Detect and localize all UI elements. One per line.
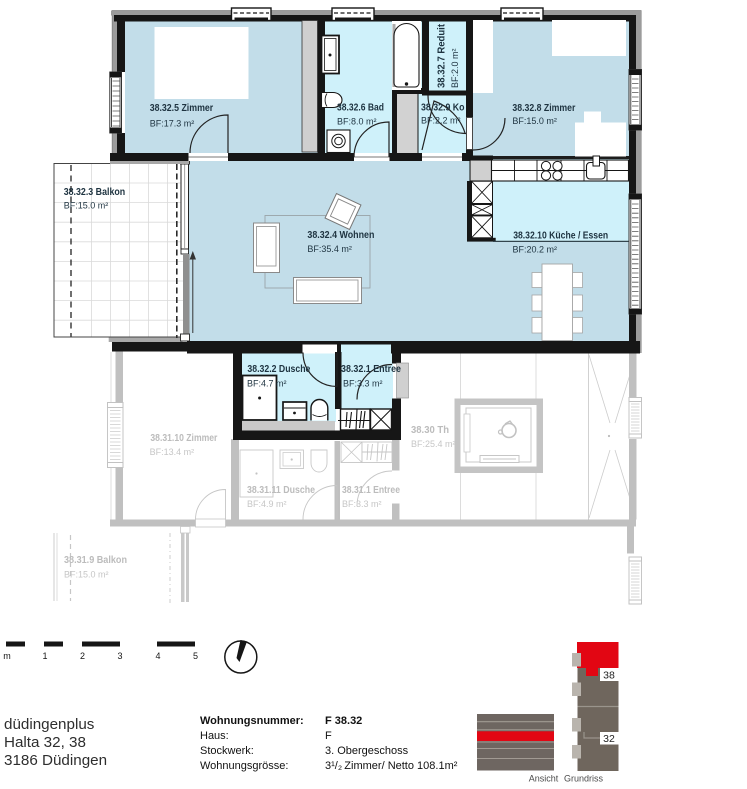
svg-text:38.32.10 Küche / Essen: 38.32.10 Küche / Essen	[513, 230, 608, 242]
svg-text:Ansicht: Ansicht	[529, 774, 559, 784]
svg-text:32: 32	[603, 733, 615, 745]
svg-text:Grundriss: Grundriss	[564, 774, 604, 784]
svg-text:3: 3	[117, 651, 122, 661]
svg-text:3. Obergeschoss: 3. Obergeschoss	[325, 745, 409, 757]
svg-text:38.31.11 Dusche: 38.31.11 Dusche	[247, 484, 315, 496]
svg-text:BF:15.0 m²: BF:15.0 m²	[64, 201, 109, 211]
svg-text:düdingenplus: düdingenplus	[4, 716, 95, 733]
svg-text:Halta 32, 38: Halta 32, 38	[4, 734, 86, 751]
svg-text:3186 Düdingen: 3186 Düdingen	[4, 752, 107, 769]
svg-text:38.32.5 Zimmer: 38.32.5 Zimmer	[150, 102, 214, 114]
svg-text:5: 5	[193, 651, 198, 661]
svg-text:BF:13.4 m²: BF:13.4 m²	[150, 447, 195, 457]
svg-text:38.32.6 Bad: 38.32.6 Bad	[337, 102, 384, 114]
svg-text:1: 1	[42, 651, 47, 661]
svg-text:BF:25.4 m²: BF:25.4 m²	[411, 439, 456, 449]
svg-text:Stockwerk:: Stockwerk:	[200, 745, 254, 757]
svg-text:BF:3.3 m²: BF:3.3 m²	[342, 499, 382, 509]
svg-text:Wohnungsgrösse:: Wohnungsgrösse:	[200, 760, 288, 772]
svg-text:BF:8.0 m²: BF:8.0 m²	[337, 117, 377, 127]
svg-text:BF:20.2 m²: BF:20.2 m²	[513, 245, 558, 255]
svg-text:F 38.32: F 38.32	[325, 715, 362, 727]
svg-text:Haus:: Haus:	[200, 730, 229, 742]
svg-text:38.32.8 Zimmer: 38.32.8 Zimmer	[512, 102, 575, 114]
svg-text:38.32.2 Dusche: 38.32.2 Dusche	[247, 363, 310, 375]
svg-text:38.32.1 Entree: 38.32.1 Entree	[341, 363, 401, 375]
svg-text:4: 4	[155, 651, 160, 661]
svg-text:BF:35.4 m²: BF:35.4 m²	[307, 244, 352, 254]
svg-text:BF:4.9 m²: BF:4.9 m²	[247, 499, 287, 509]
svg-text:38: 38	[603, 670, 615, 682]
svg-text:3¹/₂ Zimmer/ Netto 108.1m²: 3¹/₂ Zimmer/ Netto 108.1m²	[325, 760, 458, 772]
svg-text:BF:2.2 m²: BF:2.2 m²	[421, 116, 461, 126]
svg-text:BF:15.0 m²: BF:15.0 m²	[64, 570, 109, 580]
svg-text:BF:15.0 m²: BF:15.0 m²	[512, 116, 557, 126]
svg-text:F: F	[325, 730, 332, 742]
svg-text:BF:3.3 m²: BF:3.3 m²	[343, 379, 383, 389]
svg-text:38.31.9 Balkon: 38.31.9 Balkon	[64, 554, 127, 566]
svg-text:BF:17.3 m²: BF:17.3 m²	[150, 119, 195, 129]
svg-text:2: 2	[80, 651, 85, 661]
svg-text:BF:2.0 m²: BF:2.0 m²	[450, 48, 460, 88]
svg-text:m: m	[3, 651, 11, 661]
svg-text:BF:4.7 m²: BF:4.7 m²	[247, 379, 287, 389]
svg-text:38.32.7 Reduit: 38.32.7 Reduit	[436, 24, 448, 88]
svg-text:38.32.4 Wohnen: 38.32.4 Wohnen	[307, 229, 374, 241]
svg-text:38.32.3 Balkon: 38.32.3 Balkon	[64, 186, 125, 198]
svg-text:Wohnungsnummer:: Wohnungsnummer:	[200, 715, 304, 727]
svg-text:38.31.10 Zimmer: 38.31.10 Zimmer	[150, 432, 217, 444]
svg-text:38.32.9 Ko: 38.32.9 Ko	[421, 102, 465, 114]
svg-text:38.31.1 Entree: 38.31.1 Entree	[342, 484, 400, 496]
svg-text:38.30 Th: 38.30 Th	[411, 424, 449, 436]
